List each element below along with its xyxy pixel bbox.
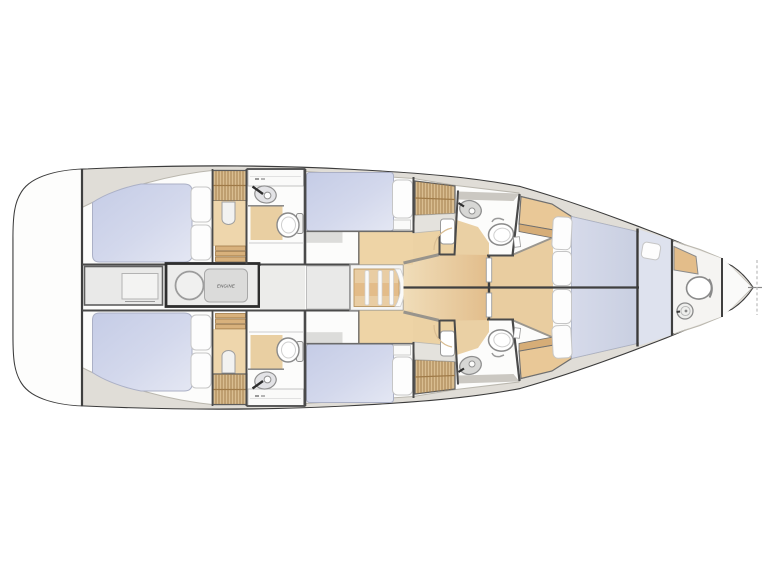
svg-text:ENGINE: ENGINE: [217, 284, 235, 289]
